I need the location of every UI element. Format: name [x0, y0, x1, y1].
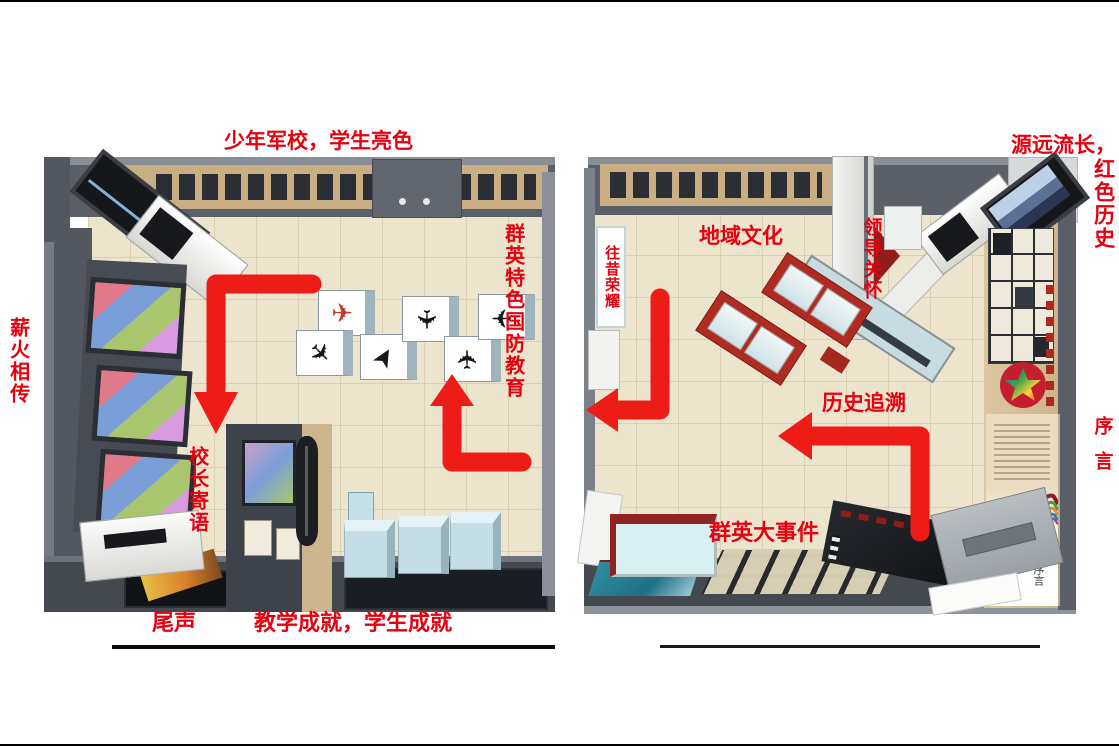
kiosk-screen — [139, 207, 193, 260]
aircraft-carrier-model — [296, 436, 318, 546]
label-torch-legacy: 薪火相传 — [6, 317, 28, 405]
red-caption-strip — [1046, 282, 1054, 406]
display-screen-1 — [85, 277, 186, 360]
aquarium-display-case — [610, 514, 717, 577]
old-text-texture — [994, 420, 1050, 480]
label-qunying-events: 群英大事件 — [709, 521, 819, 545]
divider-doc-card — [244, 520, 272, 556]
left-room-corner-wall — [44, 157, 70, 242]
right-room-ground-shadow — [660, 645, 1040, 648]
pedestal-3 — [450, 512, 501, 570]
carrier-deck-line — [305, 446, 308, 536]
right-room-outer-wall — [1058, 200, 1076, 610]
collage-dark-photo — [1015, 287, 1033, 309]
plane-icon: ✈ — [331, 298, 353, 329]
white-cube-display — [884, 206, 922, 250]
beam-dot — [423, 198, 430, 205]
history-photo-collage — [988, 228, 1054, 364]
label-principal-message: 校长寄语 — [185, 446, 207, 534]
desk-slot — [962, 522, 1036, 557]
left-room-right-wall — [542, 172, 555, 596]
past-glory-sign: 往昔荣耀 — [596, 226, 626, 328]
label-history-retrospect: 历史追溯 — [822, 393, 906, 416]
school-logo-badge — [1000, 362, 1046, 408]
collage-dark-photo — [993, 233, 1011, 255]
label-red-history: 红色历史 — [1091, 158, 1114, 250]
label-preface: 序言 — [1091, 416, 1112, 486]
label-regional-culture: 地域文化 — [699, 226, 783, 249]
divider-photo — [242, 440, 296, 506]
plane-icon: ✈ — [452, 348, 483, 370]
right-room-top-photo-band — [600, 164, 832, 206]
pedestal-1 — [344, 520, 395, 578]
missile-icon: ➤ — [365, 340, 403, 374]
rainbow-star-icon — [1000, 362, 1046, 408]
model-box-fighter: ✈ — [296, 330, 353, 376]
display-screen-2 — [91, 365, 192, 448]
label-cadet-school: 少年军校，学生亮色 — [224, 131, 413, 154]
label-leaders-care: 领导关怀 — [860, 217, 881, 301]
exhibition-floorplan: ✈ ✈ ➤ ✈ ✈ ✈ — [0, 0, 1119, 746]
label-epilogue: 尾声 — [152, 611, 196, 635]
pedestal-2 — [398, 516, 449, 574]
white-shelf — [588, 330, 620, 390]
table-slot — [104, 528, 167, 548]
label-defense-education: 群英特色国防教育 — [501, 223, 523, 399]
past-glory-label: 往昔荣耀 — [603, 245, 619, 309]
ceiling-beam-block — [372, 159, 462, 218]
top-border-line — [0, 0, 1119, 2]
model-box-bomber: ✈ — [444, 336, 501, 382]
left-room-ground-shadow — [112, 645, 555, 649]
beam-dot — [399, 198, 406, 205]
helicopter-icon: ✈ — [410, 308, 441, 330]
plane-icon: ✈ — [301, 334, 338, 371]
photo-strip — [156, 174, 536, 200]
photo-strip — [610, 172, 822, 198]
label-teaching-achievements: 教学成就，学生成就 — [254, 611, 452, 635]
label-long-history: 源远流长， — [1011, 135, 1116, 158]
console-keys — [828, 535, 840, 560]
